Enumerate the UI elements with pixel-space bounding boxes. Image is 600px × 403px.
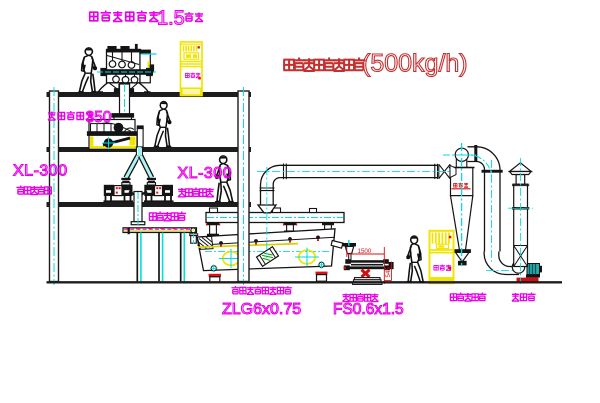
svg-text:ZLG6x0.75: ZLG6x0.75 xyxy=(222,301,301,318)
svg-text:350: 350 xyxy=(86,109,112,126)
svg-text:FS0.6x1.5: FS0.6x1.5 xyxy=(333,301,404,318)
svg-text:1.5: 1.5 xyxy=(157,8,185,30)
svg-text:1500: 1500 xyxy=(358,248,372,255)
svg-text:XL-300: XL-300 xyxy=(178,165,233,182)
svg-text:(500kg/h): (500kg/h) xyxy=(362,50,468,78)
svg-text:XL-300: XL-300 xyxy=(13,163,68,180)
svg-text:545: 545 xyxy=(385,267,392,278)
